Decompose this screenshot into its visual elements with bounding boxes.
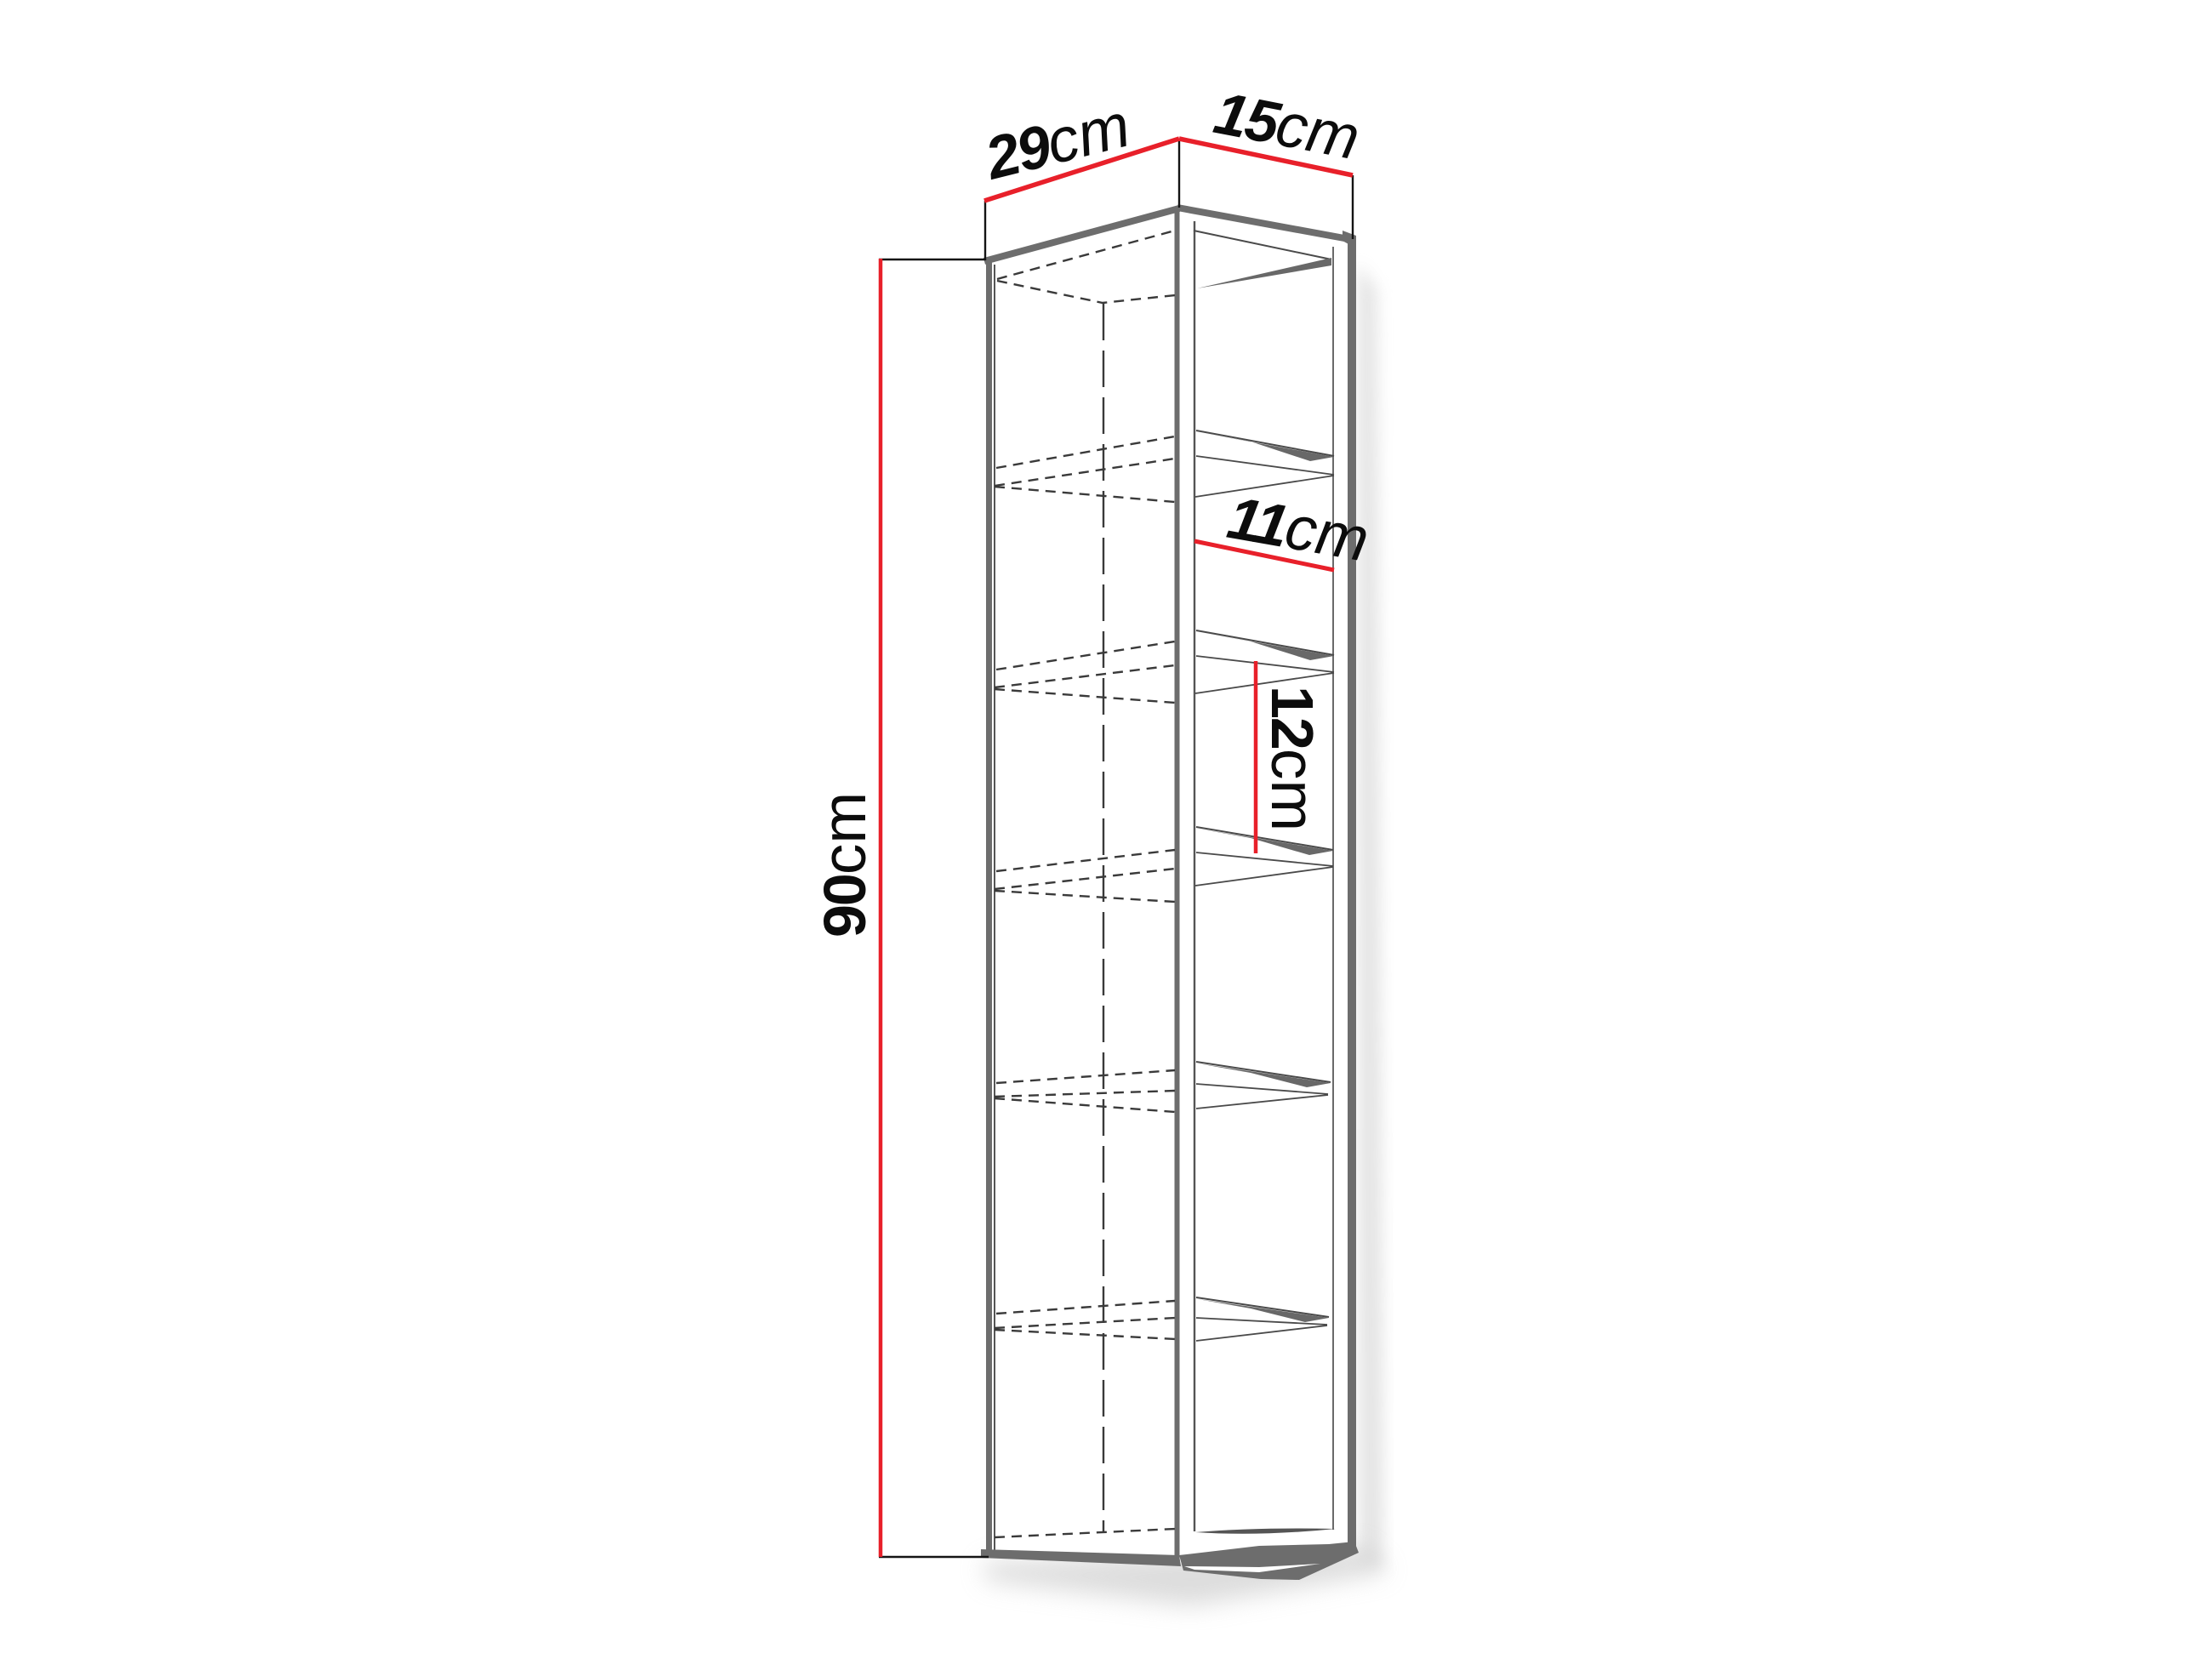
svg-text:90cm: 90cm <box>810 792 879 938</box>
svg-text:12cm: 12cm <box>1258 686 1327 831</box>
